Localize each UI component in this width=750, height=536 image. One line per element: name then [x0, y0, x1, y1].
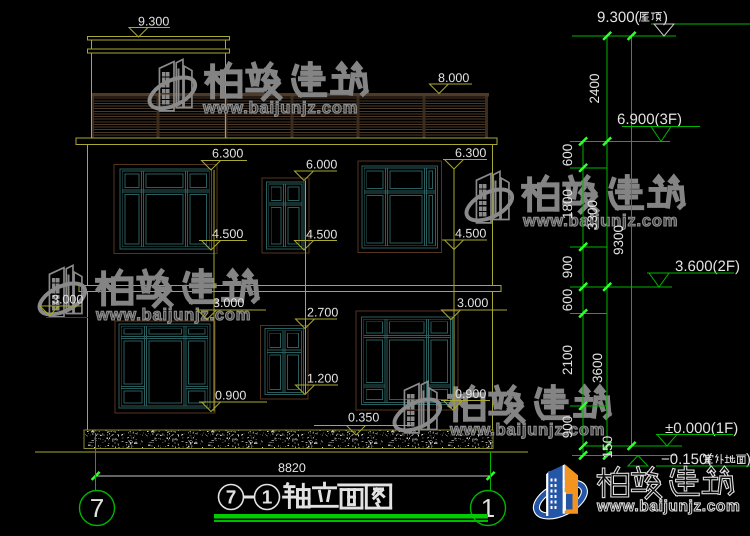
svg-text:1: 1 — [262, 488, 273, 509]
svg-text:9.300: 9.300 — [138, 15, 169, 29]
svg-text:9300: 9300 — [611, 225, 626, 255]
svg-text:600: 600 — [560, 144, 575, 167]
svg-text:3.000: 3.000 — [457, 296, 488, 310]
svg-text:900: 900 — [560, 416, 575, 439]
svg-text:4.500: 4.500 — [455, 227, 486, 241]
svg-text:7: 7 — [226, 488, 237, 509]
svg-text:2400: 2400 — [587, 73, 602, 103]
svg-text:6.900(3F): 6.900(3F) — [617, 111, 682, 128]
svg-text:7: 7 — [90, 493, 104, 523]
svg-text:3.600(2F): 3.600(2F) — [675, 258, 740, 275]
svg-text:9.300(: 9.300( — [597, 9, 640, 26]
svg-text:1: 1 — [481, 493, 495, 523]
svg-text:0.900: 0.900 — [455, 387, 486, 401]
svg-text:0.350: 0.350 — [348, 411, 379, 425]
svg-text:2.700: 2.700 — [307, 306, 338, 320]
svg-text:3.000: 3.000 — [52, 293, 83, 307]
svg-text:150: 150 — [600, 436, 615, 459]
svg-text:−0.150(: −0.150( — [661, 451, 712, 468]
svg-text:6.300: 6.300 — [212, 147, 243, 161]
svg-text:www.baijunjz.com: www.baijunjz.com — [202, 99, 358, 117]
svg-text:www.baijunjz.com: www.baijunjz.com — [449, 421, 605, 439]
svg-text:900: 900 — [560, 256, 575, 279]
svg-text:6.000: 6.000 — [306, 158, 337, 172]
svg-text:3600: 3600 — [590, 353, 605, 383]
svg-text:www.baijunjz.com: www.baijunjz.com — [522, 212, 678, 230]
svg-text:6.300: 6.300 — [455, 146, 486, 160]
svg-text:1.200: 1.200 — [307, 372, 338, 386]
svg-text:): ) — [746, 451, 750, 468]
svg-text:600: 600 — [560, 289, 575, 312]
svg-text:4.500: 4.500 — [212, 227, 243, 241]
svg-text:8820: 8820 — [278, 461, 306, 475]
svg-text:0.900: 0.900 — [215, 389, 246, 403]
svg-text:4.500: 4.500 — [306, 228, 337, 242]
svg-text:3300: 3300 — [585, 200, 600, 230]
svg-text:www.baijunjz.com: www.baijunjz.com — [596, 498, 740, 515]
svg-text:): ) — [663, 9, 668, 26]
svg-text:3.000: 3.000 — [213, 296, 244, 310]
svg-text:1800: 1800 — [560, 189, 575, 219]
svg-text:2100: 2100 — [560, 345, 575, 375]
svg-text:8.000: 8.000 — [438, 71, 469, 85]
